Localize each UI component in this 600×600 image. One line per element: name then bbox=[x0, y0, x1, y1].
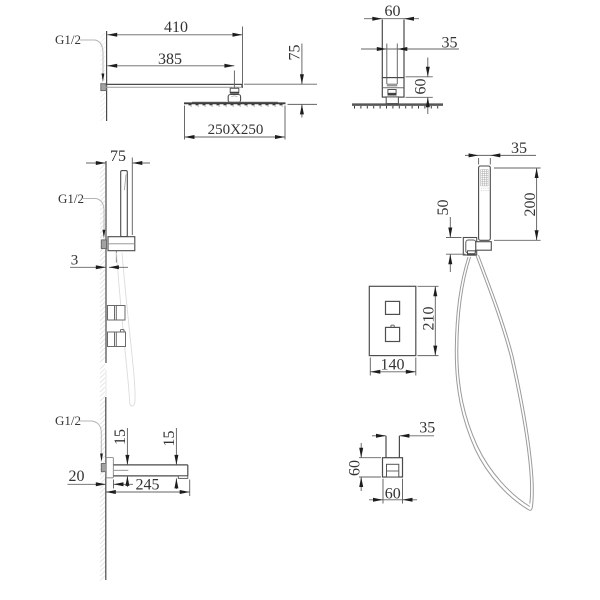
svg-text:50: 50 bbox=[435, 200, 452, 216]
svg-text:15: 15 bbox=[112, 429, 129, 445]
svg-text:385: 385 bbox=[158, 51, 182, 68]
svg-text:250X250: 250X250 bbox=[208, 122, 264, 138]
svg-text:G1/2: G1/2 bbox=[55, 32, 81, 47]
svg-text:60: 60 bbox=[385, 486, 401, 503]
svg-text:35: 35 bbox=[511, 140, 527, 157]
svg-text:60: 60 bbox=[347, 460, 364, 476]
svg-text:15: 15 bbox=[161, 431, 178, 447]
svg-text:35: 35 bbox=[442, 35, 458, 52]
svg-text:200: 200 bbox=[522, 193, 539, 217]
svg-text:410: 410 bbox=[164, 19, 188, 36]
svg-text:60: 60 bbox=[385, 3, 401, 20]
svg-text:245: 245 bbox=[136, 477, 160, 494]
svg-text:35: 35 bbox=[419, 420, 435, 437]
svg-text:140: 140 bbox=[381, 356, 405, 373]
svg-text:75: 75 bbox=[110, 148, 126, 165]
svg-text:75: 75 bbox=[287, 45, 304, 61]
svg-text:3: 3 bbox=[71, 253, 79, 269]
svg-text:20: 20 bbox=[69, 468, 85, 485]
svg-text:G1/2: G1/2 bbox=[55, 413, 81, 428]
svg-text:210: 210 bbox=[421, 307, 438, 331]
svg-text:60: 60 bbox=[412, 79, 429, 95]
svg-text:G1/2: G1/2 bbox=[58, 191, 84, 206]
